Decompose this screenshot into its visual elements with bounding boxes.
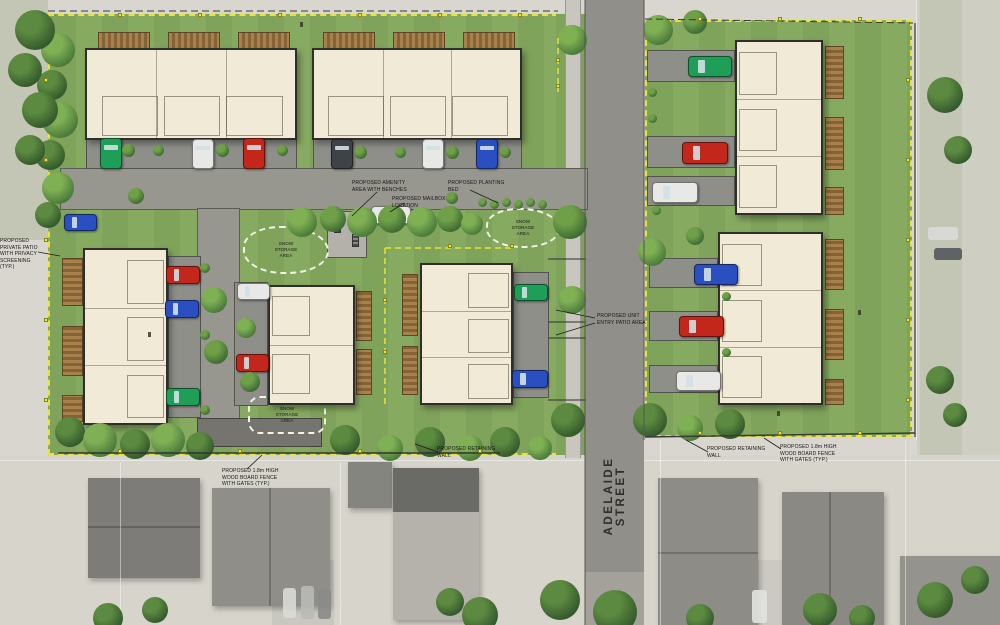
- townhouse-block-w: [83, 248, 168, 425]
- street-name-label: ADELAIDE STREET: [603, 431, 617, 561]
- photo-lot-line: [916, 0, 917, 440]
- tree: [93, 603, 123, 625]
- wood-deck: [825, 239, 844, 290]
- shrub: [446, 146, 459, 159]
- tree: [551, 403, 585, 437]
- tree: [462, 597, 498, 625]
- shrub: [216, 144, 229, 157]
- tree: [347, 207, 377, 237]
- dimension-mark: [777, 411, 780, 416]
- tree: [407, 207, 437, 237]
- car-photo: [301, 586, 314, 619]
- tree: [35, 202, 61, 228]
- tree: [320, 206, 346, 232]
- car-white: [192, 139, 214, 169]
- car-photo: [752, 590, 767, 623]
- property-line-node: [44, 78, 48, 82]
- wood-deck: [356, 349, 372, 395]
- annotation-fence-east: PROPOSED 1.8m HIGH WOOD BOARD FENCE WITH…: [780, 444, 837, 464]
- car-green: [514, 284, 548, 301]
- property-line-node: [858, 17, 862, 21]
- property-line-node: [698, 17, 702, 21]
- car-blue: [476, 139, 498, 169]
- tree: [638, 238, 666, 266]
- property-line-node: [238, 449, 242, 453]
- wood-deck: [62, 258, 83, 306]
- wood-deck: [62, 326, 83, 376]
- car-blue: [165, 300, 199, 318]
- dimension-mark: [148, 332, 151, 337]
- townhouse-block-se: [718, 232, 823, 405]
- tree: [15, 10, 55, 50]
- shrub: [200, 330, 210, 340]
- property-line-node: [858, 431, 862, 435]
- car-photo: [928, 227, 958, 240]
- photo-lot-line: [660, 440, 661, 625]
- annotation-planting-bed: PROPOSED PLANTING BED: [448, 180, 504, 193]
- house-roof: [348, 462, 392, 508]
- shrub: [648, 114, 657, 123]
- shrub: [153, 145, 164, 156]
- tree: [240, 372, 260, 392]
- tree: [42, 172, 74, 204]
- car-white: [652, 182, 698, 203]
- photo-lot-line: [905, 440, 906, 625]
- tree: [15, 135, 45, 165]
- dimension-mark: [300, 22, 303, 27]
- property-line-node: [198, 13, 202, 17]
- tree: [558, 286, 586, 314]
- dimension-mark: [858, 310, 861, 315]
- tree: [633, 403, 667, 437]
- property-line-node: [906, 158, 910, 162]
- car-green: [100, 138, 122, 169]
- shrub: [478, 198, 487, 207]
- photo-lot-line: [340, 462, 341, 625]
- property-line-node: [906, 318, 910, 322]
- wood-deck: [825, 117, 844, 170]
- car-photo: [318, 589, 331, 619]
- snow-storage-label: SNOW STORAGE AREA: [512, 219, 535, 237]
- wood-deck: [825, 46, 844, 99]
- car-photo: [934, 248, 962, 260]
- car-white: [237, 283, 270, 300]
- shrub: [354, 146, 367, 159]
- property-line-node: [383, 350, 387, 354]
- property-line-node: [278, 13, 282, 17]
- tree: [437, 206, 463, 232]
- shrub: [722, 292, 731, 301]
- shrub: [526, 198, 535, 207]
- shrub: [122, 144, 135, 157]
- annotation-amenity: PROPOSED AMENITY AREA WITH BENCHES: [352, 180, 407, 193]
- annotation-retaining-wall-east: PROPOSED RETAINING WALL: [707, 446, 765, 459]
- site-plan-canvas: SNOW STORAGE AREA SNOW STORAGE AREA SNOW…: [0, 0, 1000, 625]
- property-line-node: [44, 158, 48, 162]
- tree: [643, 15, 673, 45]
- shrub: [514, 200, 523, 209]
- tree: [436, 588, 464, 616]
- tree: [120, 429, 150, 459]
- photo-lot-line: [0, 460, 1000, 461]
- tree: [186, 432, 214, 460]
- property-line-node: [698, 431, 702, 435]
- tree: [944, 136, 972, 164]
- annotation-unit-patio: PROPOSED UNIT ENTRY PATIO AREA: [597, 313, 646, 326]
- property-line-node: [44, 318, 48, 322]
- property-line-node: [358, 449, 362, 453]
- tree: [22, 92, 58, 128]
- car-blue: [694, 264, 738, 285]
- car-blue: [512, 370, 548, 388]
- tree: [142, 597, 168, 623]
- property-line-node: [556, 58, 560, 62]
- townhouse-block-nw: [85, 48, 297, 140]
- property-line-node: [556, 84, 560, 88]
- annotation-fence-west: PROPOSED 1.8m HIGH WOOD BOARD FENCE WITH…: [222, 468, 279, 488]
- tree: [236, 318, 256, 338]
- tree: [686, 227, 704, 245]
- tree: [677, 415, 703, 441]
- property-line-node: [778, 431, 782, 435]
- shrub: [277, 145, 288, 156]
- snow-storage-area: SNOW STORAGE AREA: [486, 208, 560, 248]
- property-line-node: [906, 238, 910, 242]
- townhouse-block-center: [268, 285, 355, 405]
- shrub: [446, 192, 458, 204]
- snow-storage-label: SNOW STORAGE AREA: [276, 406, 299, 424]
- car-red: [679, 316, 724, 337]
- car-blue: [64, 214, 97, 231]
- tree: [715, 409, 745, 439]
- annotation-private-patio: PROPOSED PRIVATE PATIO WITH PRIVACY SCRE…: [0, 238, 46, 271]
- property-line-node: [906, 78, 910, 82]
- tree: [330, 425, 360, 455]
- tree: [557, 25, 587, 55]
- shrub: [128, 188, 144, 204]
- tree: [204, 340, 228, 364]
- tree: [926, 366, 954, 394]
- annotation-mailbox: PROPOSED MAILBOX LOCATION: [392, 196, 446, 209]
- tree: [83, 423, 117, 457]
- tree: [528, 436, 552, 460]
- tree: [849, 605, 875, 625]
- tree: [287, 207, 317, 237]
- car-red: [236, 354, 269, 372]
- car-red: [243, 138, 265, 169]
- tree: [961, 566, 989, 594]
- shrub: [502, 198, 511, 207]
- tree: [461, 213, 483, 235]
- tree: [553, 205, 587, 239]
- tree: [803, 593, 837, 625]
- property-line-node: [118, 13, 122, 17]
- shrub: [500, 147, 511, 158]
- tree: [943, 403, 967, 427]
- car-dark: [331, 139, 353, 169]
- annotation-retaining-wall-west: PROPOSED RETAINING WALL: [437, 446, 495, 459]
- property-line-node: [478, 449, 482, 453]
- property-line-node: [778, 17, 782, 21]
- tree: [201, 287, 227, 313]
- wood-deck: [356, 291, 372, 341]
- tree: [151, 423, 185, 457]
- snow-storage-label: SNOW STORAGE AREA: [275, 241, 298, 259]
- property-line-node: [438, 13, 442, 17]
- car-white: [422, 139, 444, 169]
- car-white: [676, 371, 721, 391]
- wood-deck: [825, 187, 844, 215]
- wood-deck: [825, 309, 844, 360]
- property-line-node: [358, 13, 362, 17]
- wood-deck: [825, 379, 844, 405]
- car-photo: [283, 588, 296, 618]
- townhouse-block-cs: [420, 263, 513, 405]
- tree: [378, 205, 406, 233]
- property-line-node: [44, 398, 48, 402]
- property-line-node: [118, 449, 122, 453]
- wood-deck: [402, 346, 418, 395]
- shrub: [652, 206, 661, 215]
- shrub: [395, 147, 406, 158]
- house-roof: [658, 478, 758, 625]
- shrub: [648, 88, 657, 97]
- property-line-node: [906, 398, 910, 402]
- car-green: [166, 388, 200, 406]
- car-red: [682, 142, 728, 164]
- wood-deck: [402, 274, 418, 336]
- tree: [686, 604, 714, 625]
- house-roof: [88, 478, 200, 578]
- property-line-node: [44, 238, 48, 242]
- property-line-node: [510, 244, 514, 248]
- tree: [540, 580, 580, 620]
- tree: [683, 10, 707, 34]
- tree: [8, 53, 42, 87]
- property-line-node: [518, 13, 522, 17]
- car-red: [166, 266, 200, 284]
- snow-storage-area: SNOW STORAGE AREA: [243, 226, 329, 274]
- tree: [927, 77, 963, 113]
- shrub: [722, 348, 731, 357]
- property-line-node: [383, 298, 387, 302]
- tree: [377, 435, 403, 461]
- townhouse-block-ne: [735, 40, 823, 215]
- townhouse-block-n: [312, 48, 522, 140]
- shrub: [490, 200, 499, 209]
- property-line-node: [448, 244, 452, 248]
- shrub: [200, 263, 210, 273]
- photo-lot-line: [120, 462, 121, 625]
- shrub: [538, 200, 547, 209]
- shrub: [200, 405, 210, 415]
- car-green: [688, 56, 732, 77]
- tree: [917, 582, 953, 618]
- tree: [55, 417, 85, 447]
